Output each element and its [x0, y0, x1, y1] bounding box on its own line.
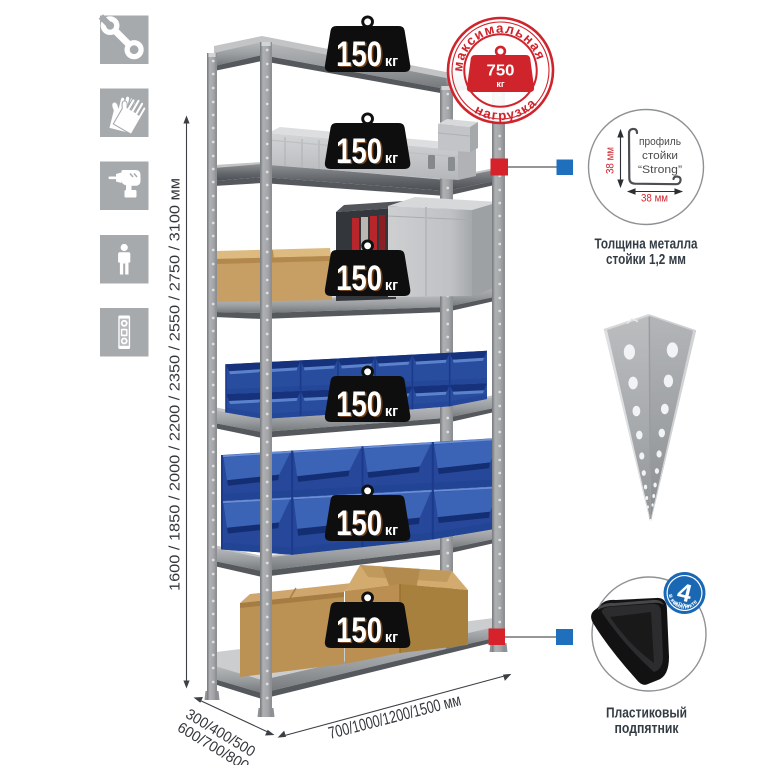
svg-text:стойки: стойки [642, 150, 678, 162]
svg-text:кг: кг [496, 79, 505, 89]
svg-text:38 мм: 38 мм [641, 193, 668, 205]
svg-text:150: 150 [336, 34, 382, 74]
svg-text:подпятник: подпятник [615, 721, 679, 737]
svg-text:кг: кг [385, 523, 398, 539]
svg-text:150: 150 [336, 503, 382, 543]
svg-text:кг: кг [385, 54, 398, 70]
svg-text:профиль: профиль [639, 136, 681, 148]
svg-text:1600 / 1850 / 2000 / 2200 / 23: 1600 / 1850 / 2000 / 2200 / 2350 / 2550 … [167, 178, 184, 591]
svg-text:150: 150 [336, 258, 382, 298]
svg-text:150: 150 [336, 384, 382, 424]
svg-text:кг: кг [385, 404, 398, 420]
svg-text:150: 150 [336, 131, 382, 171]
svg-text:кг: кг [385, 278, 398, 294]
svg-text:кг: кг [385, 151, 398, 167]
svg-text:750: 750 [487, 63, 515, 80]
svg-text:Пластиковый: Пластиковый [606, 706, 687, 722]
svg-text:38 мм: 38 мм [605, 147, 617, 174]
svg-text:150: 150 [336, 610, 382, 650]
svg-text:кг: кг [385, 630, 398, 646]
svg-text:стойки 1,2 мм: стойки 1,2 мм [606, 252, 686, 268]
svg-text:Толщина металла: Толщина металла [595, 237, 699, 253]
svg-text:“Strong”: “Strong” [638, 164, 682, 176]
